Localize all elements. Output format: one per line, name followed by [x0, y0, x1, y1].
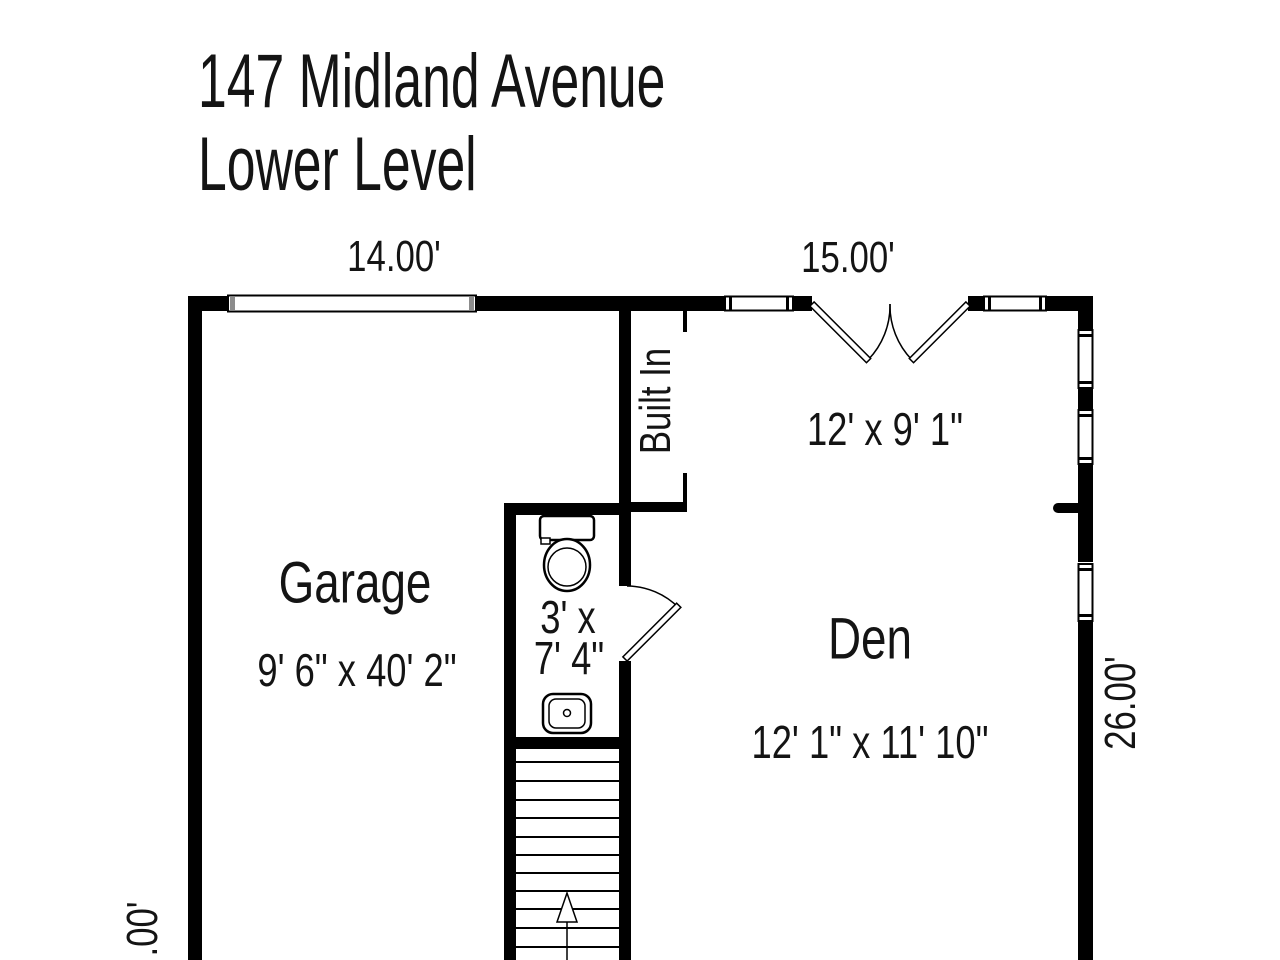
left-wall [188, 296, 202, 960]
dimension-label-garage-width: 14.00' [347, 232, 441, 282]
door-swing-arc [890, 304, 912, 360]
den-stub-wall [1053, 503, 1083, 513]
window [1078, 410, 1093, 464]
window [1078, 564, 1093, 621]
built-in-front-stub-top [683, 311, 687, 332]
garage-door-cap [469, 297, 474, 310]
garage-door-panel [228, 296, 476, 312]
right-wall-segment [1078, 621, 1093, 960]
built-in-front-stub-bottom [683, 473, 687, 504]
dimension-label-right-height: 26.00' [1096, 656, 1146, 750]
built-in-bottom-wall [631, 502, 687, 512]
door-leaf [909, 302, 970, 363]
french-door [810, 302, 970, 363]
room-dimensions-garage: 9' 6" x 40' 2" [257, 643, 456, 697]
window [984, 296, 1046, 311]
top-wall-segment [793, 296, 812, 311]
built-in-west-wall [619, 311, 631, 503]
dimension-label-den-width: 15.00' [801, 233, 895, 283]
garage-door-cap [230, 297, 235, 310]
room-dimensions-den-upper: 12' x 9' 1" [807, 402, 963, 456]
stairs-up-arrow-icon [557, 893, 577, 960]
room-dimensions-bathroom-line2: 7' 4" [534, 631, 604, 685]
bathroom-bottom-wall [504, 737, 631, 749]
room-dimensions-den: 12' 1" x 11' 10" [751, 715, 988, 769]
bathroom-top-wall [504, 503, 631, 515]
top-wall-segment [968, 296, 984, 311]
door-swing-arc [627, 586, 679, 608]
room-label-built-in: Built In [631, 348, 681, 454]
windows-top [725, 296, 1046, 311]
window [1078, 330, 1093, 388]
right-wall-segment [1078, 388, 1093, 410]
bathroom-right-wall [619, 515, 631, 586]
garage-door [228, 296, 476, 312]
door-leaf [623, 603, 681, 661]
room-label-garage: Garage [279, 550, 432, 617]
top-wall-segment [476, 296, 725, 311]
bathroom-door [623, 586, 681, 661]
toilet-icon [540, 516, 594, 591]
right-wall-segment [1078, 296, 1093, 330]
right-wall-segment [1078, 464, 1093, 562]
plan-title-level: Lower Level [198, 123, 665, 206]
sink-icon [543, 694, 591, 733]
plan-title-address: 147 Midland Avenue [198, 40, 665, 123]
room-label-den: Den [828, 606, 912, 673]
dimension-label-left-height-partial: .00' [118, 902, 168, 957]
stair-right-wall [619, 661, 631, 960]
door-leaf [810, 302, 871, 363]
floor-plan: 147 Midland Avenue Lower Level 14.00' 15… [0, 0, 1280, 960]
window [725, 296, 793, 311]
door-swing-arc [868, 304, 890, 360]
bathroom-left-wall [504, 503, 516, 960]
plan-title: 147 Midland Avenue Lower Level [198, 40, 665, 206]
